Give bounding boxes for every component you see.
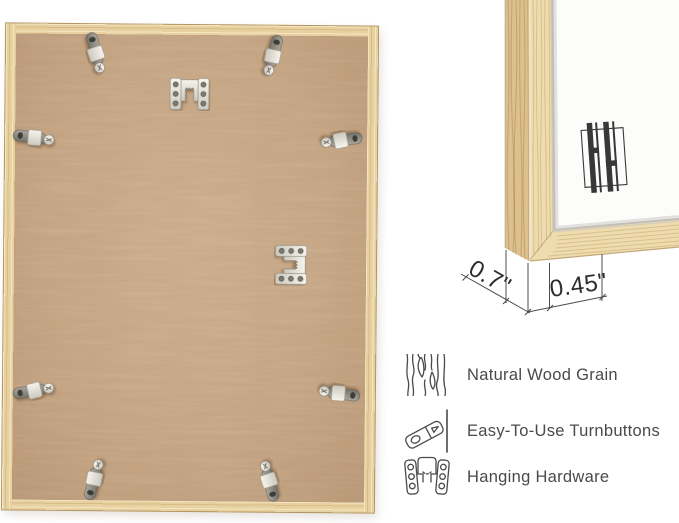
product-infographic: 0.7" 0.45" Natural Wood Grain <box>0 0 679 523</box>
mat-board <box>551 0 679 232</box>
turnbutton-icon <box>403 408 453 454</box>
feature-row-hanging-hardware: Hanging Hardware <box>403 455 609 499</box>
wood-grain-icon <box>403 354 449 396</box>
hanging-hardware-icon <box>403 455 451 499</box>
feature-label: Hanging Hardware <box>467 468 609 487</box>
sawtooth-hanger-side <box>274 244 308 286</box>
frame-corner-detail: 0.7" 0.45" <box>440 0 679 330</box>
feature-row-wood-grain: Natural Wood Grain <box>403 354 618 396</box>
frame-back-photo <box>2 23 378 512</box>
depth-dimension-label: 0.7" <box>464 255 516 300</box>
feature-label: Natural Wood Grain <box>467 366 618 385</box>
frame-side-face <box>505 0 529 261</box>
sawtooth-hanger-top <box>168 77 210 111</box>
feature-row-turnbuttons: Easy-To-Use Turnbuttons <box>403 408 660 454</box>
feature-label: Easy-To-Use Turnbuttons <box>467 422 660 441</box>
